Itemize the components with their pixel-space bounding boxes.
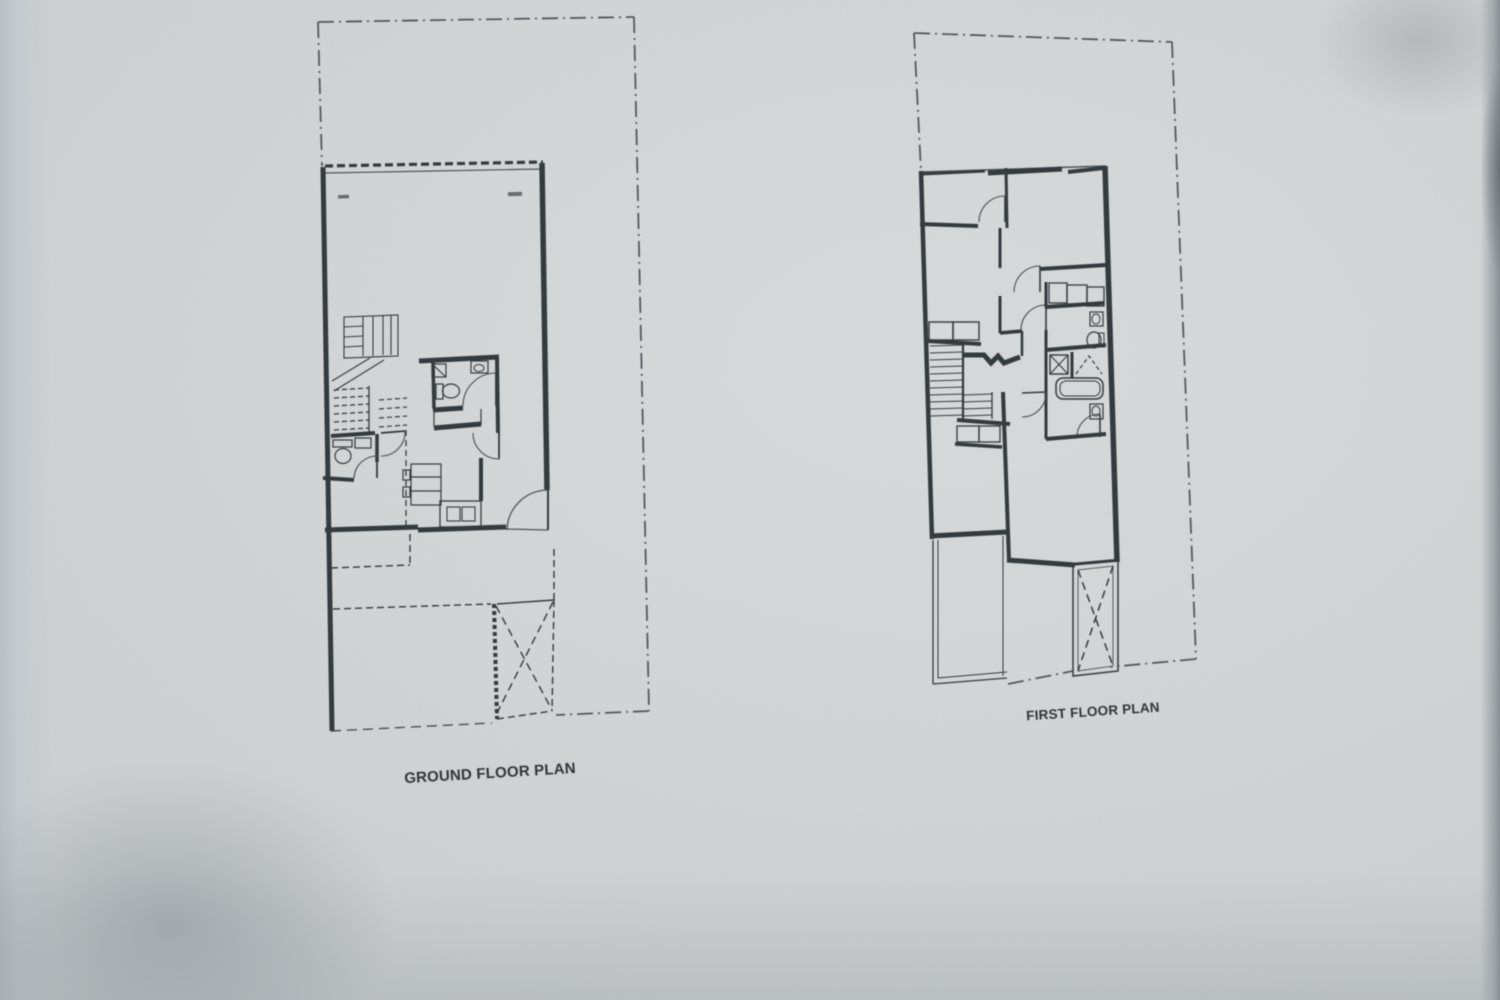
paper-grain-texture [0, 0, 1500, 1000]
scanned-floor-plan-photo: GROUND FLOOR PLAN [0, 0, 1500, 1000]
floor-plan-drawing: GROUND FLOOR PLAN [0, 0, 1500, 1000]
